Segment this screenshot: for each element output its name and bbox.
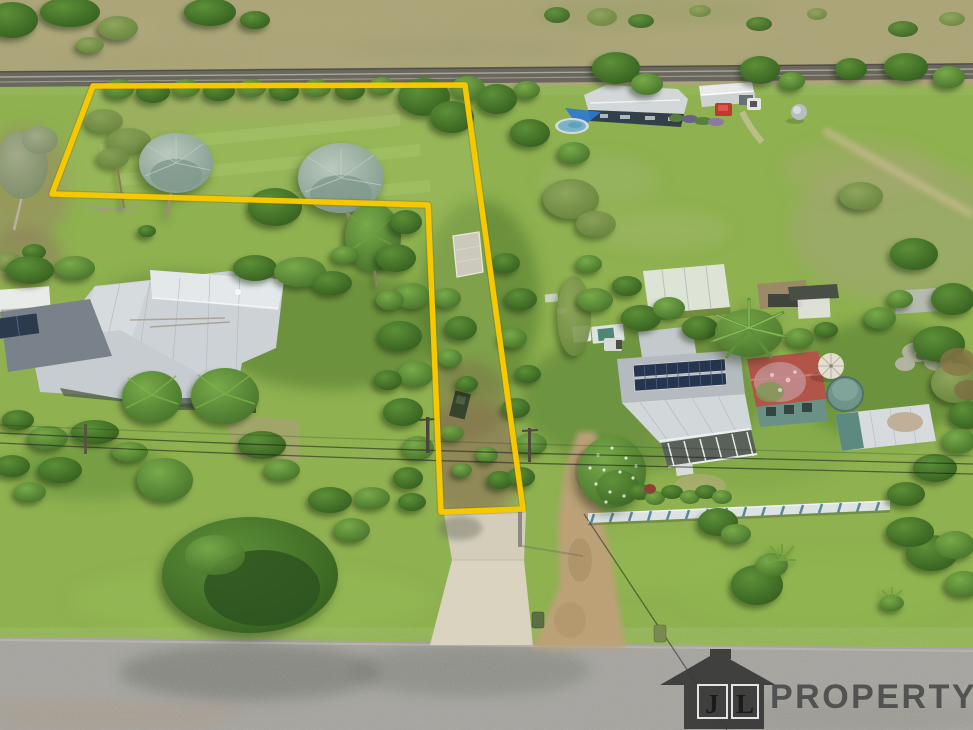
golf-cart	[604, 338, 622, 351]
round-gazebo	[827, 377, 863, 411]
photo-canvas: J L PROPERTY	[0, 0, 973, 730]
porch-stairs	[675, 463, 693, 476]
casuarina-tree	[557, 276, 591, 356]
logo-initial-l: L	[736, 689, 754, 719]
big-tree-bottom-left	[162, 517, 338, 633]
white-buggy	[747, 98, 761, 110]
round-pool	[555, 118, 589, 134]
concrete-slab	[453, 232, 483, 277]
aerial-property-photo: J L PROPERTY	[0, 0, 973, 730]
logo-initial-j: J	[705, 689, 719, 719]
red-car-roof	[718, 105, 728, 111]
watermark-brand-text: PROPERTY	[770, 678, 973, 716]
red-roof-cottage	[747, 351, 828, 427]
